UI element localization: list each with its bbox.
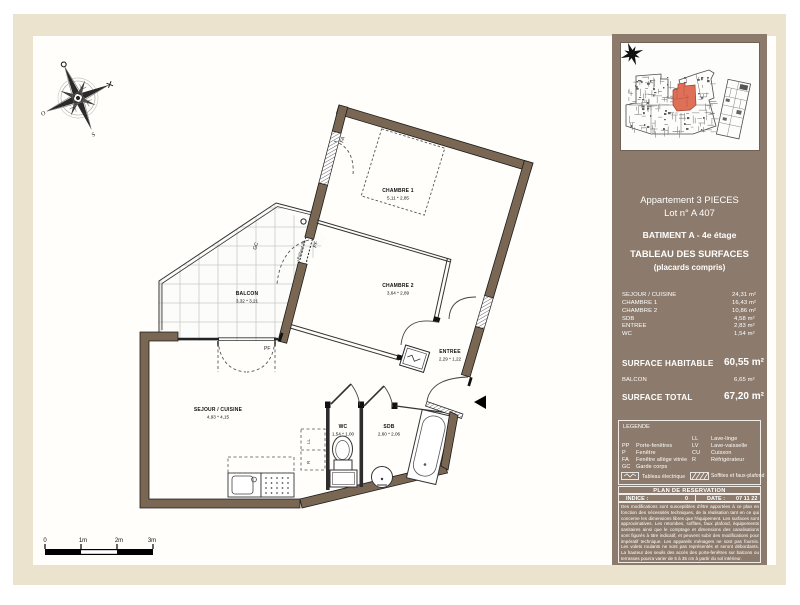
svg-text:3m: 3m xyxy=(148,538,156,544)
svg-text:SEJOUR / CUISINE: SEJOUR / CUISINE xyxy=(194,407,243,413)
svg-text:3,32 * 3,21: 3,32 * 3,21 xyxy=(236,299,259,304)
svg-text:CHAMBRE 2: CHAMBRE 2 xyxy=(382,283,414,289)
svg-text:ENTREE: ENTREE xyxy=(439,349,461,355)
svg-text:CHAMBRE 1: CHAMBRE 1 xyxy=(382,188,414,194)
svg-text:4,93 * 4,15: 4,93 * 4,15 xyxy=(207,415,230,420)
svg-text:O: O xyxy=(40,110,47,117)
svg-text:1m: 1m xyxy=(79,538,87,544)
svg-text:1,54 * 1,00: 1,54 * 1,00 xyxy=(332,432,355,437)
svg-text:2m: 2m xyxy=(115,538,123,544)
svg-text:2,29 * 1,22: 2,29 * 1,22 xyxy=(439,357,462,362)
svg-text:5,11 * 2,85: 5,11 * 2,85 xyxy=(387,196,409,201)
svg-text:LL: LL xyxy=(306,438,311,444)
svg-text:0: 0 xyxy=(43,538,47,544)
svg-text:2,60 * 2,06: 2,60 * 2,06 xyxy=(378,432,401,437)
svg-text:FA: FA xyxy=(339,135,347,143)
svg-text:3,64 * 2,89: 3,64 * 2,89 xyxy=(387,291,410,296)
svg-text:BALCON: BALCON xyxy=(236,291,259,297)
svg-text:R: R xyxy=(306,460,311,464)
svg-text:S: S xyxy=(91,132,96,139)
svg-text:SDB: SDB xyxy=(383,424,394,430)
svg-text:PF: PF xyxy=(264,346,270,352)
svg-text:WC: WC xyxy=(339,424,348,430)
